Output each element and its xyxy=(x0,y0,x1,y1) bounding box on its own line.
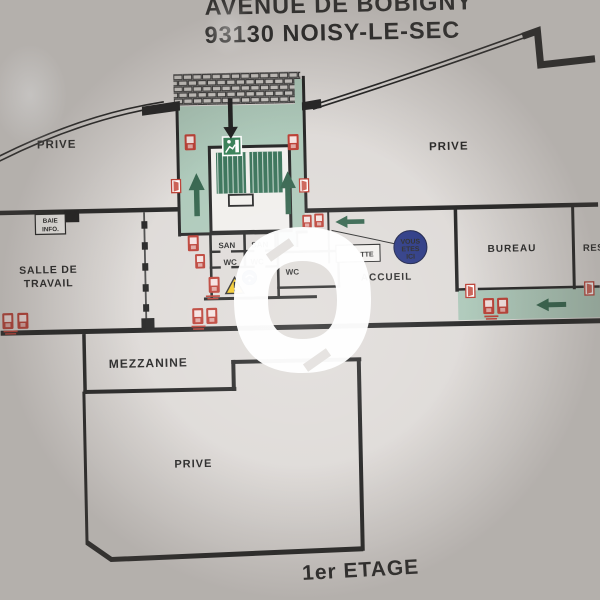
photo-of-evacuation-plan: AVENUE DE BOBIGNY 93130 NOISY-LE-SEC xyxy=(0,0,600,600)
evacuation-plan-svg: AVENUE DE BOBIGNY 93130 NOISY-LE-SEC xyxy=(0,0,600,600)
photo-lighting xyxy=(0,0,600,600)
